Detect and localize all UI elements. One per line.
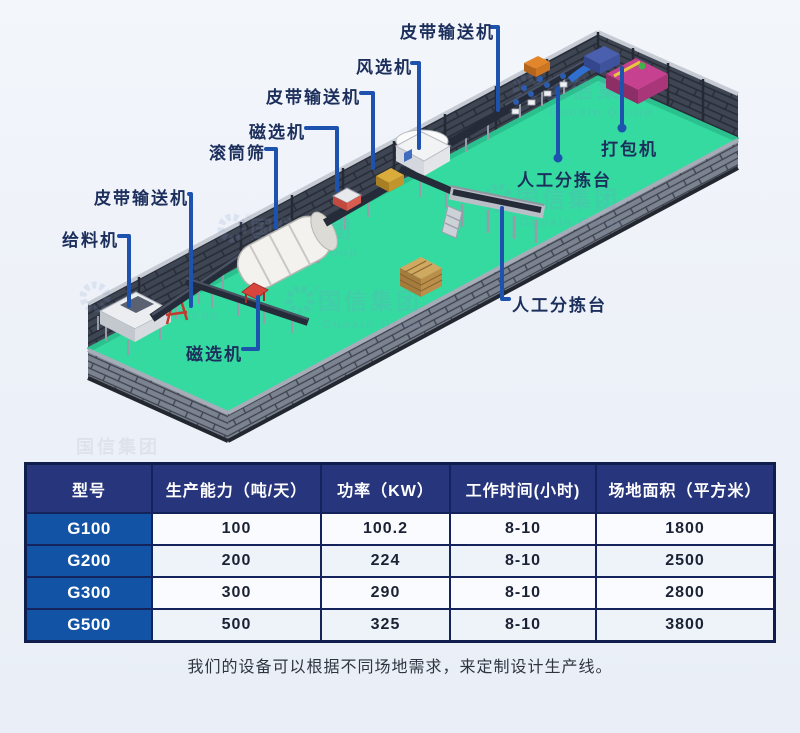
capacity-cell: 300 [153,578,320,608]
watermark-text-en: Guoxin Group [322,317,427,331]
label-belt-conveyor-top: 皮带输送机 [400,18,495,43]
power-cell: 100.2 [322,514,449,544]
pointer-belt-left [189,194,191,306]
page: ® 国信集团 Guoxin Group ® 国信集团 Guoxin Group … [0,0,800,733]
area-cell: 2800 [597,578,773,608]
col-header-model: 型号 [27,465,151,512]
model-cell: G300 [27,578,151,608]
label-trommel-screen: 滚筒筛 [209,139,266,164]
hours-cell: 8-10 [451,610,595,640]
col-header-area: 场地面积（平方米） [597,465,773,512]
watermark-text-en: Guoxin Group [549,105,654,119]
area-cell: 1800 [597,514,773,544]
hours-cell: 8-10 [451,578,595,608]
col-header-hours: 工作时间(小时) [451,465,595,512]
hours-cell: 8-10 [451,546,595,576]
col-header-capacity: 生产能力（吨/天） [153,465,320,512]
label-feeder: 给料机 [62,226,119,251]
label-manual-sorting-2: 人工分拣台 [512,291,607,316]
model-cell: G200 [27,546,151,576]
watermark-text-cn: 国信集团 [318,288,422,314]
watermark: 国信集团 [76,436,160,457]
capacity-cell: 500 [153,610,320,640]
label-magnetic-separator-bottom: 磁选机 [186,340,243,365]
spec-table: 型号 生产能力（吨/天） 功率（KW） 工作时间(小时) 场地面积（平方米） G… [24,462,776,643]
label-belt-conveyor-2: 皮带输送机 [266,83,361,108]
model-cell: G100 [27,514,151,544]
watermark-text-cn: 国信集团 [76,436,160,457]
power-cell: 224 [322,546,449,576]
model-cell: G500 [27,610,151,640]
area-cell: 2500 [597,546,773,576]
caption: 我们的设备可以根据不同场地需求，来定制设计生产线。 [0,653,800,677]
hours-cell: 8-10 [451,514,595,544]
capacity-cell: 100 [153,514,320,544]
power-cell: 290 [322,578,449,608]
pointer-dot [618,124,627,133]
col-header-power: 功率（KW） [322,465,449,512]
power-cell: 325 [322,610,449,640]
label-air-separator: 风选机 [356,53,413,78]
pointer-dot [554,154,563,163]
capacity-cell: 200 [153,546,320,576]
label-baler: 打包机 [601,135,658,160]
area-cell: 3800 [597,610,773,640]
label-belt-conveyor-left: 皮带输送机 [94,184,189,209]
label-manual-sorting-1: 人工分拣台 [517,166,612,191]
